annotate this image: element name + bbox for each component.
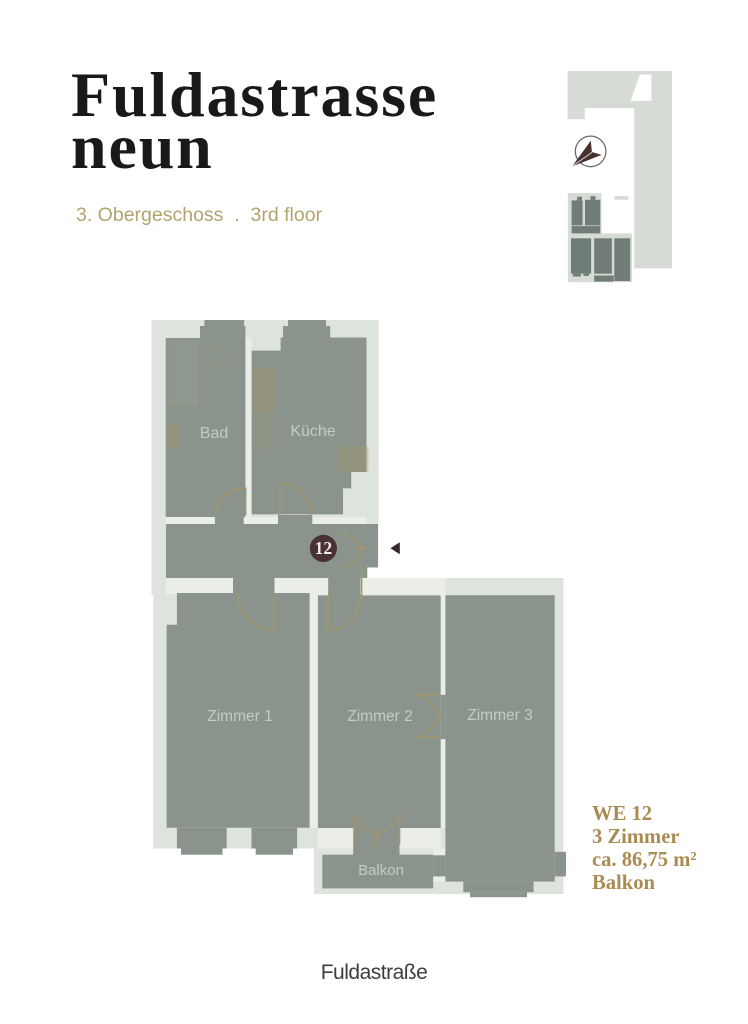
svg-text:Küche: Küche [290,423,335,440]
svg-text:Zimmer 1: Zimmer 1 [207,708,272,725]
svg-text:Zimmer 3: Zimmer 3 [467,707,532,724]
svg-text:12: 12 [315,538,333,558]
svg-text:Bad: Bad [200,425,228,442]
svg-text:Zimmer 2: Zimmer 2 [347,708,412,725]
svg-text:Balkon: Balkon [358,862,404,879]
